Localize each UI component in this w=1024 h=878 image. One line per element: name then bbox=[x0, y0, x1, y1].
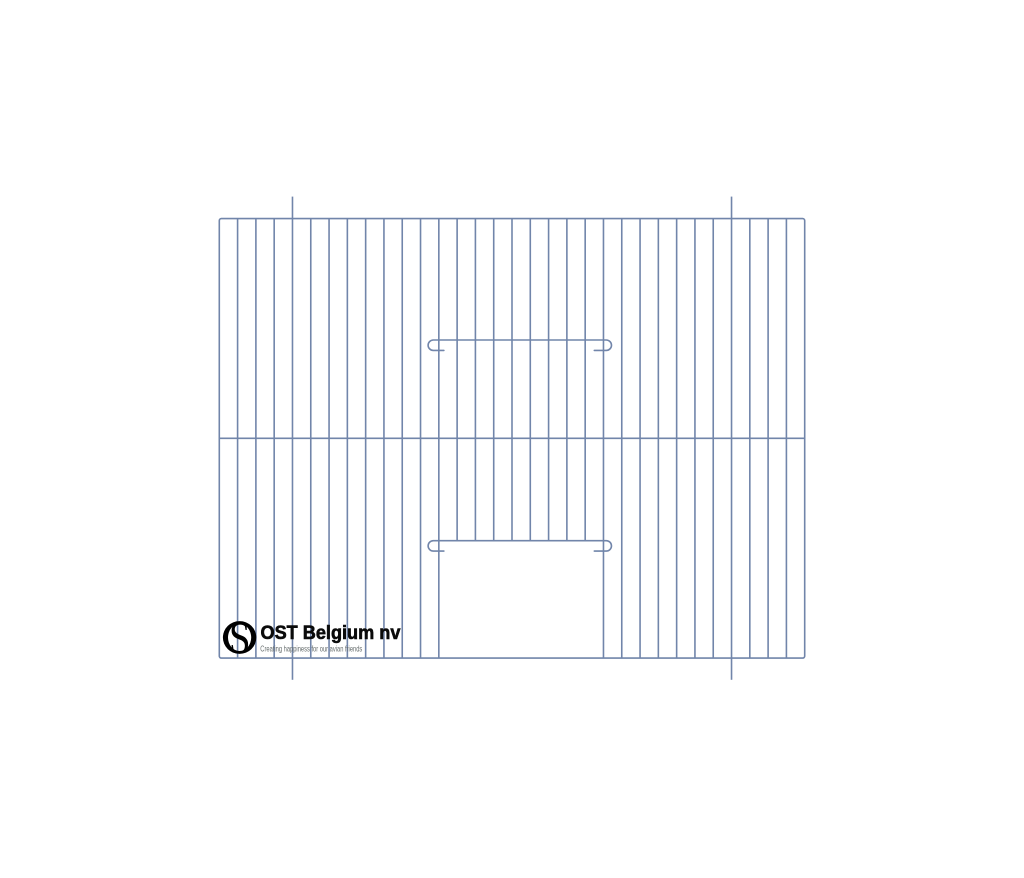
svg-text:OST Belgium nv: OST Belgium nv bbox=[261, 622, 401, 644]
svg-text:S: S bbox=[229, 612, 251, 663]
svg-text:Creating happiness for our avi: Creating happiness for our avian friends bbox=[260, 644, 362, 653]
